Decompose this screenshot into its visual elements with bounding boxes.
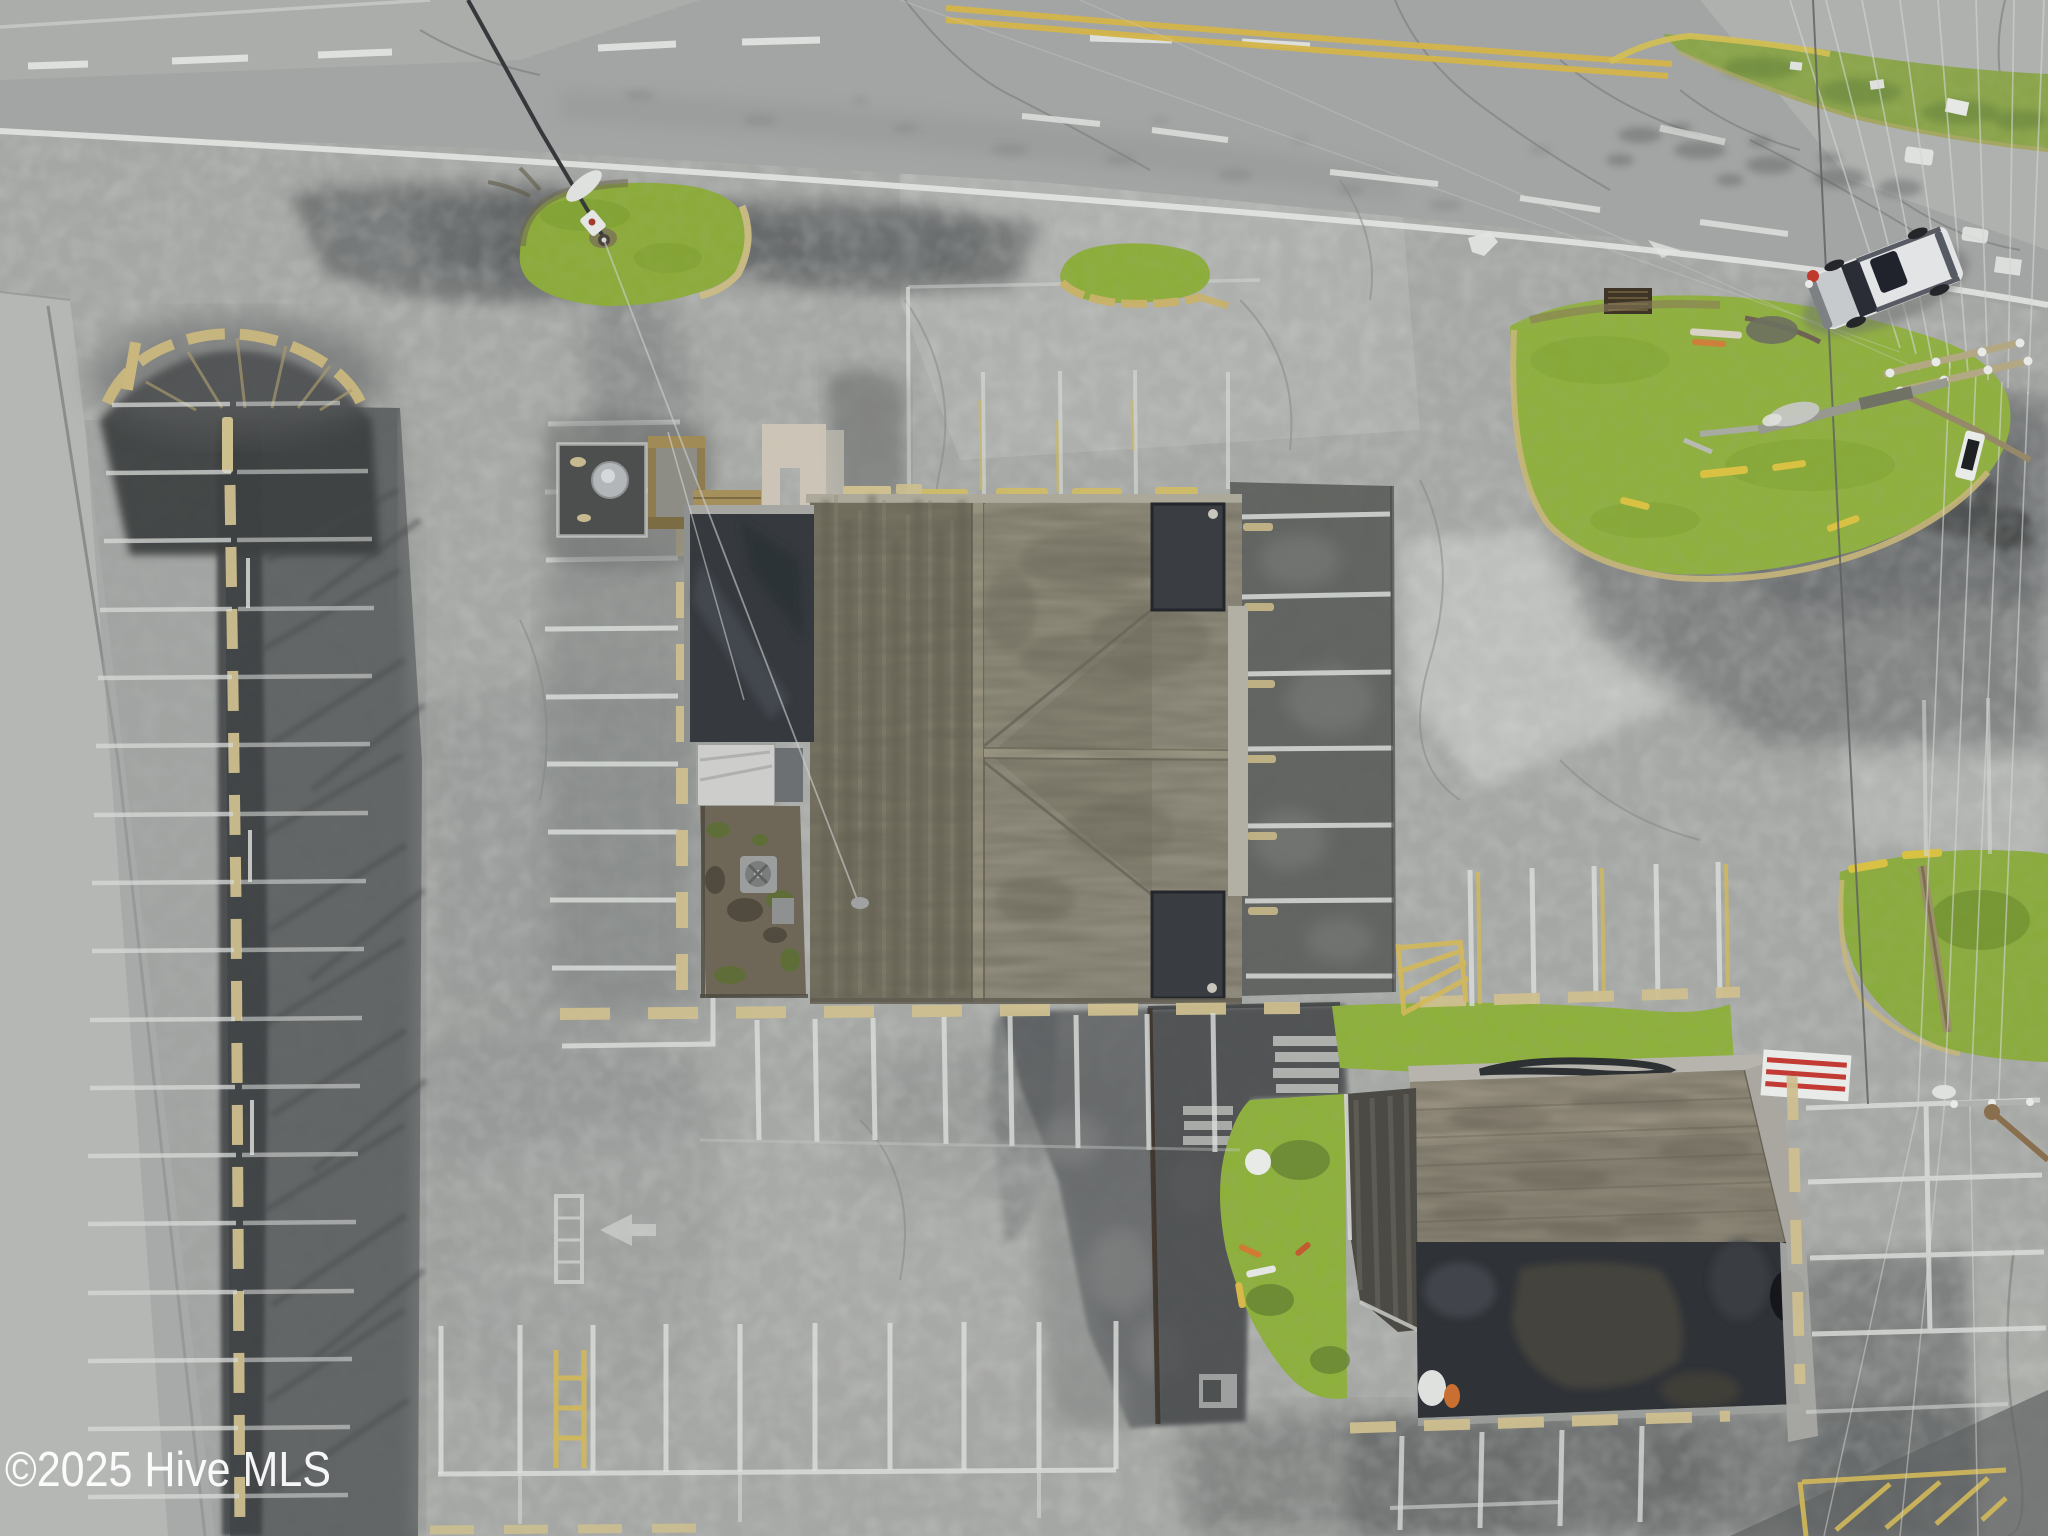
svg-text:©2025 Hive MLS: ©2025 Hive MLS (5, 1443, 331, 1497)
